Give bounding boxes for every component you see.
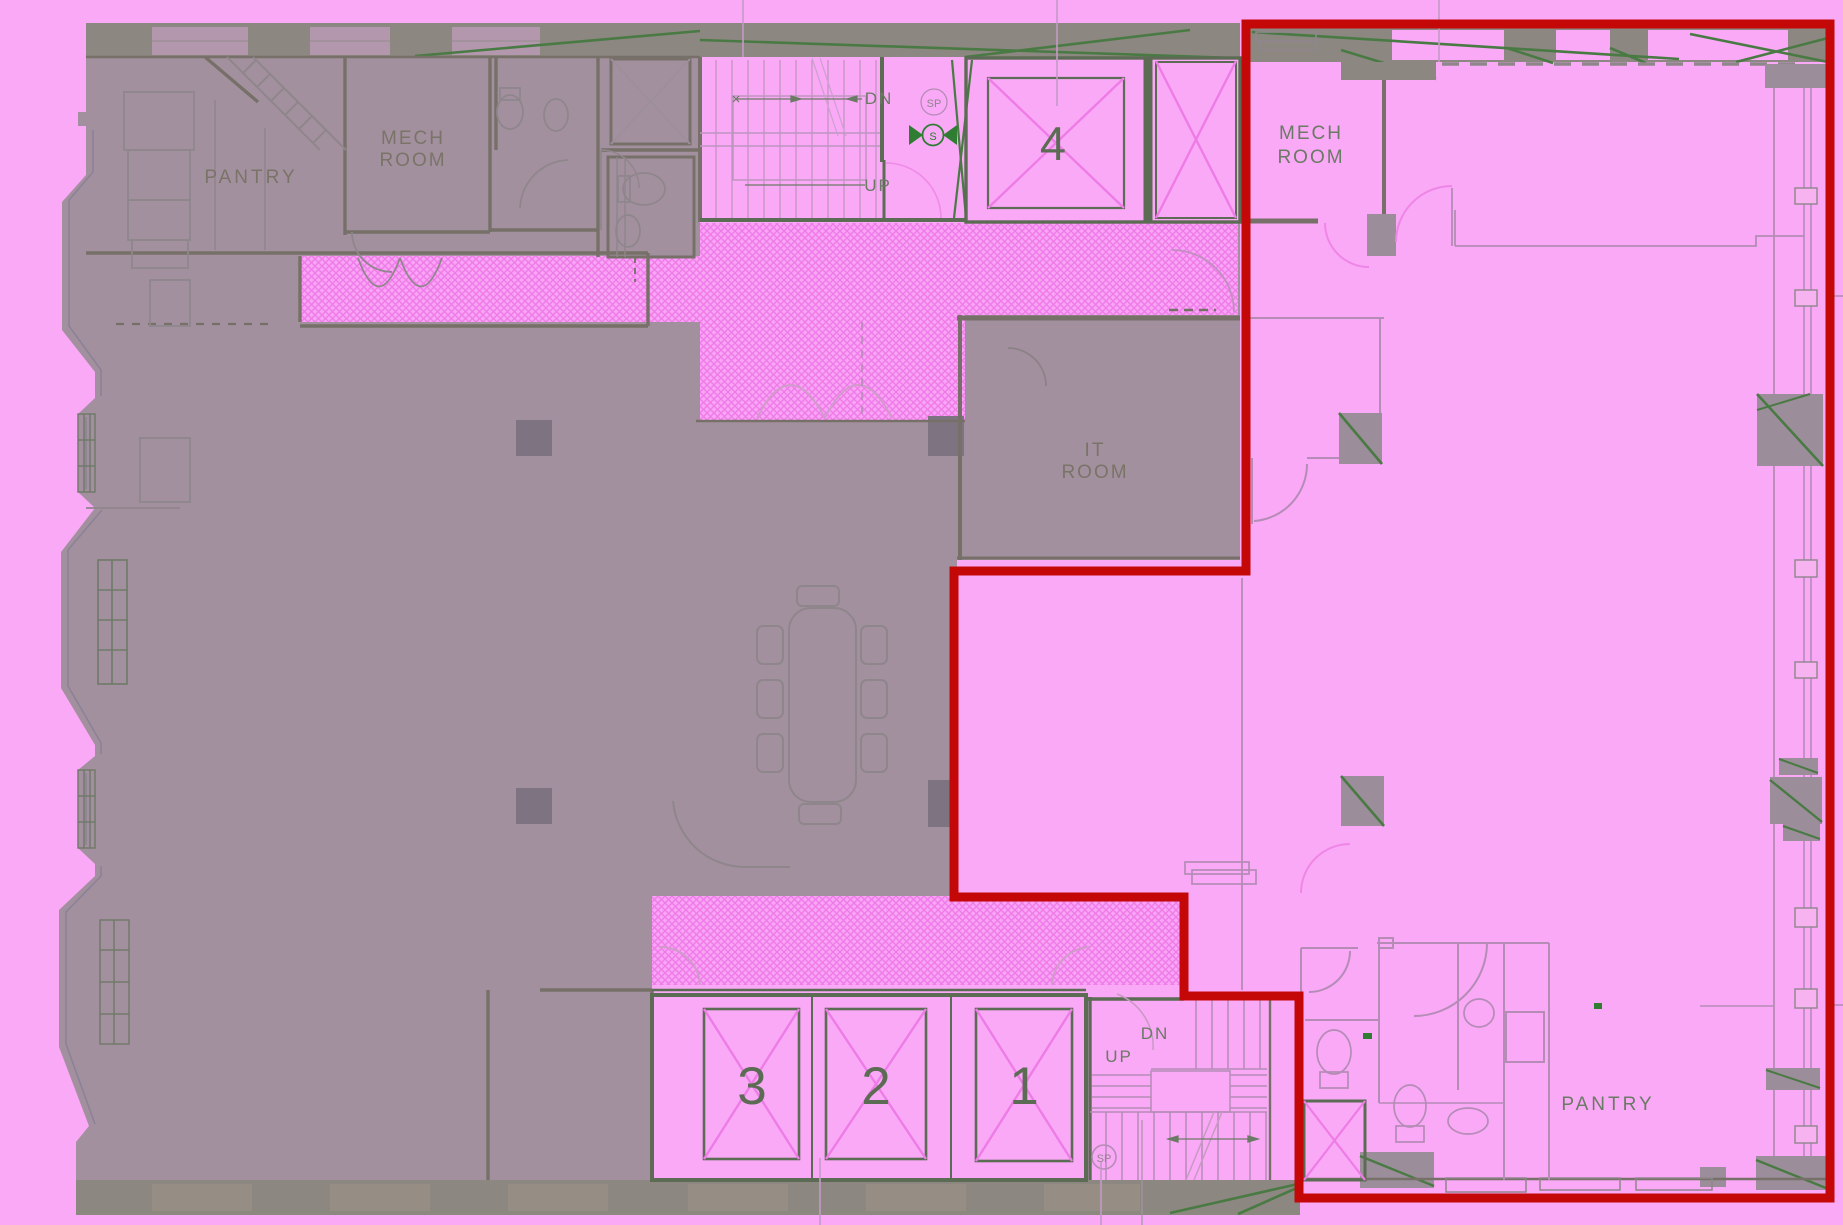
svg-text:ROOM: ROOM [379, 150, 446, 171]
svg-text:ROOM: ROOM [1061, 462, 1128, 483]
svg-text:IT: IT [1085, 440, 1106, 461]
svg-text:ROOM: ROOM [1277, 147, 1344, 168]
svg-text:1: 1 [1009, 1057, 1038, 1116]
svg-text:SP: SP [1097, 1153, 1112, 1165]
svg-text:UP: UP [1105, 1047, 1133, 1066]
svg-text:3: 3 [737, 1057, 766, 1116]
svg-text:PANTRY: PANTRY [1561, 1094, 1654, 1115]
svg-text:MECH: MECH [381, 128, 445, 149]
svg-text:2: 2 [861, 1057, 890, 1116]
svg-text:DN: DN [865, 89, 894, 108]
svg-text:S: S [929, 131, 936, 143]
svg-text:SP: SP [927, 98, 942, 110]
svg-text:UP: UP [864, 176, 892, 195]
svg-text:4: 4 [1040, 117, 1066, 170]
svg-text:PANTRY: PANTRY [204, 167, 297, 188]
svg-text:DN: DN [1141, 1024, 1170, 1043]
svg-text:MECH: MECH [1279, 123, 1343, 144]
